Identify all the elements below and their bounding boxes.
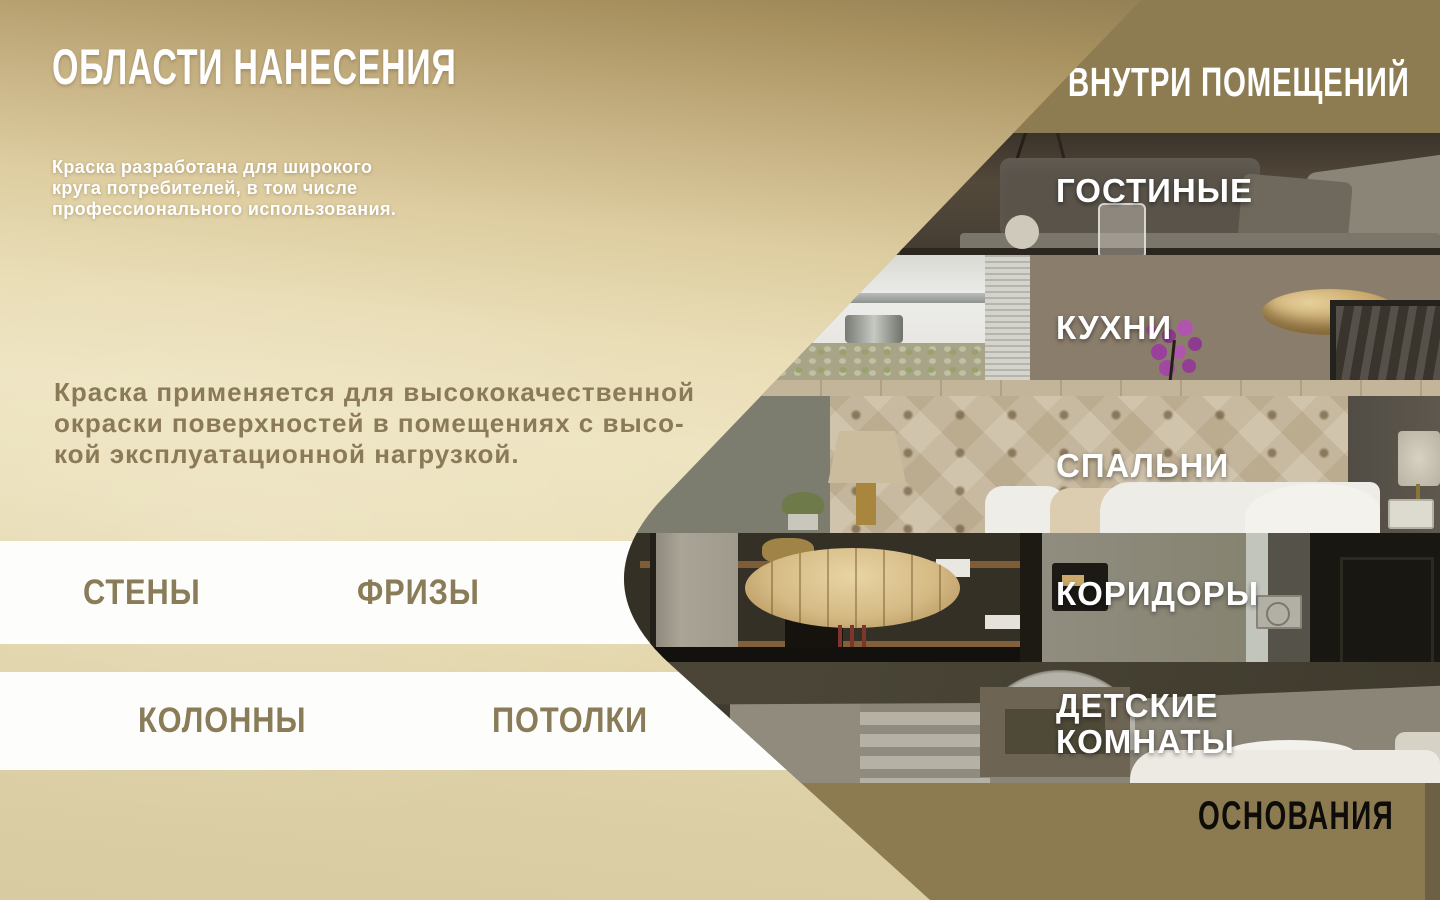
bases-label: ОСНОВАНИЯ	[1198, 796, 1394, 836]
light-switch	[1388, 499, 1434, 529]
headboard-top-strip	[700, 380, 1440, 396]
cocoon-lantern-lamp	[745, 548, 960, 628]
floor-shadow	[900, 248, 1440, 255]
room-label-bedrooms: СПАЛЬНИ	[1056, 448, 1229, 484]
wall-lamp-glow	[1398, 431, 1440, 486]
stair-steps	[860, 712, 990, 783]
surface-label-ceilings: ПОТОЛКИ	[492, 672, 648, 770]
description-paragraph: Краска применяется для высококачественно…	[54, 377, 695, 470]
bases-band: ОСНОВАНИЯ	[0, 783, 1440, 900]
steel-cylinder	[845, 315, 903, 343]
room-label-corridors: КОРИДОРЫ	[1056, 576, 1259, 612]
photo-kitchens	[0, 255, 1440, 396]
window-blinds	[985, 255, 1030, 396]
table-lamp-shade	[828, 431, 906, 483]
surface-label-friezes: ФРИЗЫ	[357, 541, 480, 644]
potted-plant	[782, 492, 824, 516]
page-title: ОБЛАСТИ НАНЕСЕНИЯ	[52, 42, 457, 92]
console-surface	[560, 647, 1020, 662]
plant-pot	[788, 514, 818, 530]
slide: ОБЛАСТИ НАНЕСЕНИЯ Краска разработана для…	[0, 0, 1440, 900]
glass-jug	[1098, 203, 1146, 255]
surface-label-walls: СТЕНЫ	[83, 541, 201, 644]
surface-label-columns: КОЛОННЫ	[138, 672, 306, 770]
door-panel	[1340, 557, 1434, 662]
dark-edge-strip	[1425, 783, 1440, 900]
room-label-kitchens: КУХНИ	[1056, 310, 1172, 346]
lantern-ribs	[745, 548, 960, 628]
wall-divider	[1020, 533, 1042, 662]
vase	[1005, 215, 1039, 249]
rooms-header-label: ВНУТРИ ПОМЕЩЕНИЙ	[1068, 62, 1410, 103]
table-lamp-base	[856, 483, 876, 525]
room-label-childrens-rooms: ДЕТСКИЕ КОМНАТЫ	[1056, 688, 1236, 760]
room-label-living-rooms: ГОСТИНЫЕ	[1056, 173, 1253, 209]
dimmer-dial	[1266, 602, 1290, 626]
window-bar	[700, 293, 1010, 303]
corridor-cabinet	[650, 533, 738, 662]
intro-paragraph: Краска разработана для широкого круга по…	[52, 157, 396, 220]
